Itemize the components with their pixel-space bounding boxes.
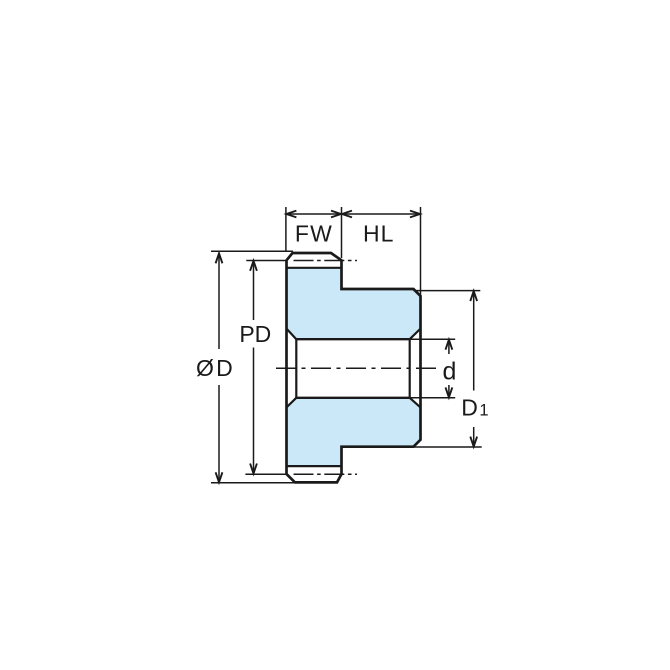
svg-text:PD: PD bbox=[239, 321, 271, 347]
svg-text:d: d bbox=[443, 358, 457, 386]
svg-text:HL: HL bbox=[363, 221, 394, 247]
svg-text:ØD: ØD bbox=[196, 355, 235, 381]
svg-text:FW: FW bbox=[295, 221, 333, 247]
